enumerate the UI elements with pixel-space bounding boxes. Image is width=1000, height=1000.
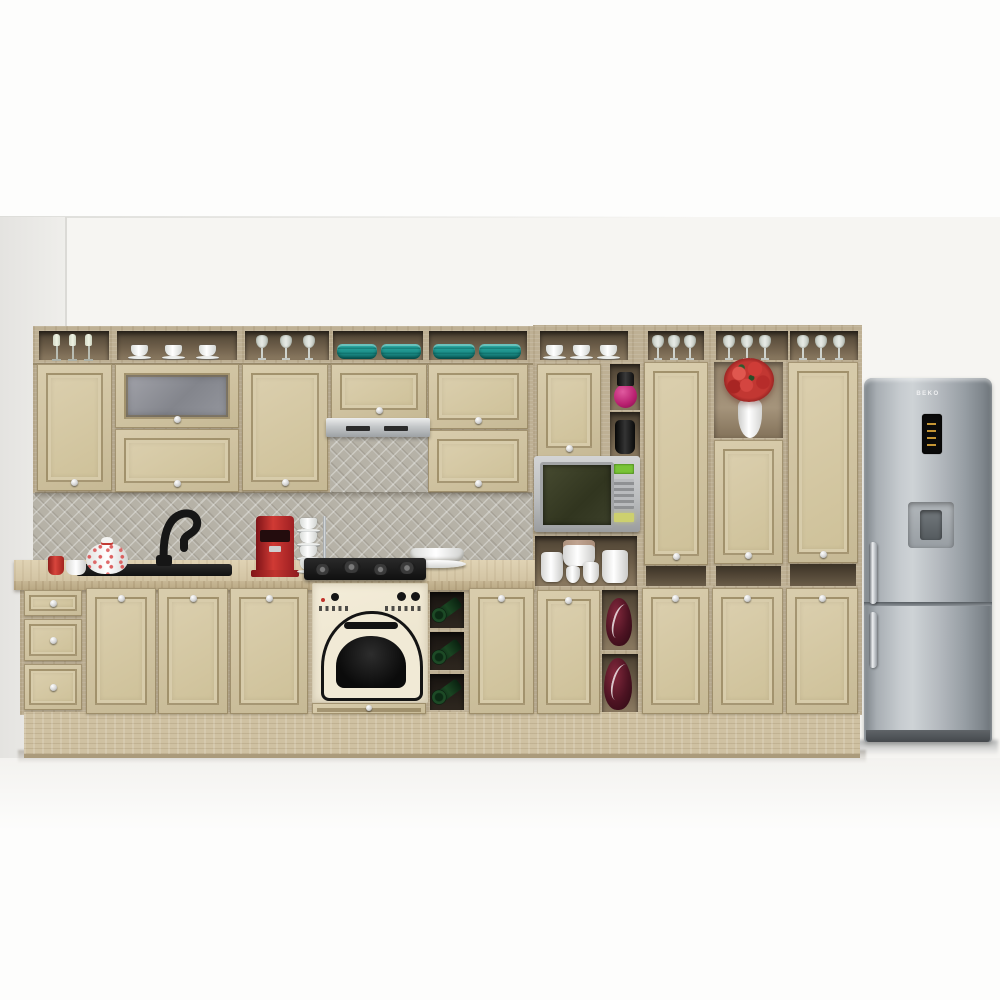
tall-open-gap xyxy=(790,564,856,586)
base-cabinet-door-2 xyxy=(469,588,534,714)
tall-open-gap xyxy=(716,566,781,586)
hood-cabinet-flip-door xyxy=(331,364,427,419)
black-jar xyxy=(615,420,635,454)
tall-base-door-left xyxy=(642,588,709,714)
red-bouquet xyxy=(724,358,774,402)
maroon-vase xyxy=(604,658,632,710)
candlestick xyxy=(84,334,93,361)
wine-glass xyxy=(815,335,827,360)
oven-knob xyxy=(397,592,406,601)
white-canister xyxy=(541,552,563,582)
wall-cabinet-flip-door-1 xyxy=(115,429,239,492)
oven-drawer xyxy=(312,703,426,714)
stacked-cup xyxy=(300,546,317,557)
white-canister xyxy=(602,550,628,583)
wall-cabinet-flip-door-3 xyxy=(428,430,528,492)
microwave-buttons xyxy=(614,479,634,509)
wine-glass xyxy=(256,335,268,360)
wine-glass xyxy=(652,335,664,360)
teapot-lid xyxy=(101,537,113,545)
white-canister xyxy=(566,566,580,583)
oven-knob xyxy=(411,592,420,601)
wall-cabinet-shadow xyxy=(35,492,532,499)
oven-window xyxy=(336,636,406,688)
kitchen-scene: BEKO xyxy=(0,0,1000,1000)
cup-and-saucer xyxy=(573,345,590,356)
teal-bowl-stack xyxy=(433,344,475,359)
drawer-1 xyxy=(24,590,82,616)
water-dispenser xyxy=(908,502,954,548)
backsplash-hood-area xyxy=(330,436,428,493)
fridge-display-digits xyxy=(927,420,936,446)
fridge-display xyxy=(922,414,942,454)
teal-bowl-stack xyxy=(337,344,377,359)
hob-burner xyxy=(398,562,416,574)
microwave-display xyxy=(614,464,634,474)
oven-knob xyxy=(331,593,339,601)
wine-glass xyxy=(741,335,753,360)
oven xyxy=(312,583,428,703)
teal-bowl-stack xyxy=(479,344,521,359)
coffee-group-head xyxy=(269,546,281,552)
cup-and-saucer xyxy=(546,345,563,356)
fridge-handle-lower xyxy=(869,612,877,668)
sink-cabinet-door-right xyxy=(158,588,228,714)
candlestick xyxy=(52,334,61,361)
faucet xyxy=(148,500,220,566)
wine-glass xyxy=(280,335,292,360)
wine-glass xyxy=(759,335,771,360)
cup-and-saucer xyxy=(131,345,148,356)
tall-door-left xyxy=(644,362,708,565)
wine-glass xyxy=(797,335,809,360)
coffee-machine-base xyxy=(251,570,299,577)
wine-glass xyxy=(668,335,680,360)
refrigerator: BEKO xyxy=(864,378,992,742)
wall-cabinet-glass-door xyxy=(115,364,239,428)
white-canister xyxy=(583,562,599,583)
fridge-door-split xyxy=(864,602,992,606)
wine-glass xyxy=(684,335,696,360)
tall-door-right xyxy=(788,362,858,563)
range-hood xyxy=(326,418,430,437)
hood-filter-slot xyxy=(384,426,408,431)
oven-vent xyxy=(319,606,349,611)
dispenser-recess xyxy=(920,510,942,540)
tall-mid-door xyxy=(714,440,783,564)
drawer-3 xyxy=(24,664,82,710)
fridge-plinth xyxy=(866,730,990,742)
tall-upper-door-microwave-column xyxy=(537,364,601,457)
base-cabinet-door-1 xyxy=(230,588,308,714)
stacked-cup xyxy=(300,518,317,529)
cup-and-saucer xyxy=(600,345,617,356)
wall-cabinet-door-1 xyxy=(37,364,112,491)
candlestick xyxy=(68,334,77,361)
plinth xyxy=(24,712,860,758)
teal-bowl-stack xyxy=(381,344,421,359)
hood-filter-slot xyxy=(346,426,370,431)
oven-vent xyxy=(385,606,421,611)
oven-lamp xyxy=(321,598,325,602)
tall-base-door-middle xyxy=(712,588,783,714)
hob-burner xyxy=(372,564,389,575)
teapot xyxy=(86,543,128,574)
base-door-under-microwave xyxy=(537,590,600,714)
floor xyxy=(0,758,1000,1000)
ceiling-line xyxy=(0,216,1000,218)
hob-burner xyxy=(314,564,331,575)
hob-burner xyxy=(342,561,361,573)
cup-and-saucer xyxy=(165,345,182,356)
wall-cabinet-flip-door-2 xyxy=(428,364,528,429)
wine-glass xyxy=(303,335,315,360)
wine-glass xyxy=(723,335,735,360)
microwave xyxy=(534,456,640,532)
coffee-machine-panel xyxy=(260,530,290,542)
gas-hob xyxy=(304,558,426,580)
fridge-handle-upper xyxy=(869,542,877,604)
fridge-floor-shadow xyxy=(856,740,998,755)
tall-open-gap xyxy=(646,566,706,586)
oven-door-arch xyxy=(321,611,423,701)
maroon-vase xyxy=(606,598,632,646)
magenta-vase-lid xyxy=(617,372,634,386)
red-cup xyxy=(48,556,64,575)
oven-handle xyxy=(344,622,398,629)
sink-cabinet-door-left xyxy=(86,588,156,714)
coffee-machine xyxy=(256,516,294,572)
wine-glass xyxy=(833,335,845,360)
microwave-start-button xyxy=(614,513,634,522)
microwave-door xyxy=(540,462,614,528)
white-mug xyxy=(66,560,86,575)
stacked-cup xyxy=(300,532,317,543)
tall-base-door-right xyxy=(786,588,858,714)
fridge-brand-logo: BEKO xyxy=(908,391,948,397)
cup-and-saucer xyxy=(199,345,216,356)
drawer-2 xyxy=(24,619,82,661)
wall-cabinet-door-2 xyxy=(242,364,328,491)
frosted-glass xyxy=(126,375,228,417)
magenta-vase xyxy=(614,384,637,408)
